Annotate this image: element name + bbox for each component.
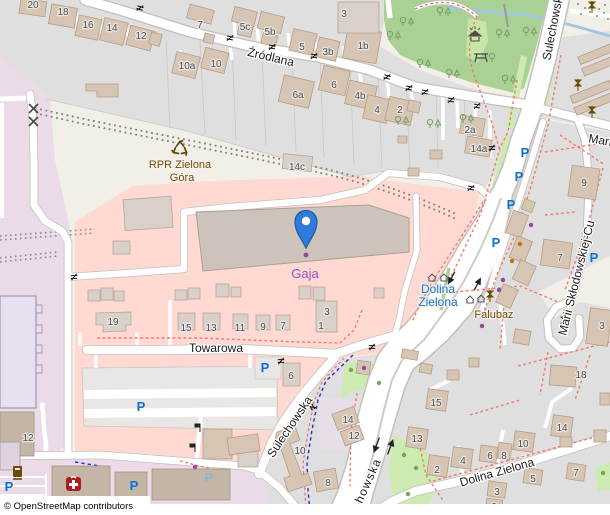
svg-text:10a: 10a	[179, 61, 196, 72]
svg-text:7: 7	[280, 321, 286, 332]
svg-text:4: 4	[460, 456, 466, 467]
svg-text:6: 6	[288, 371, 294, 382]
svg-text:Góra: Góra	[170, 172, 195, 184]
svg-text:7: 7	[197, 20, 203, 31]
svg-text:4: 4	[374, 105, 380, 116]
svg-text:14c: 14c	[289, 162, 305, 173]
svg-text:6a: 6a	[292, 90, 304, 101]
svg-text:12: 12	[22, 433, 34, 444]
svg-text:6: 6	[487, 451, 493, 462]
svg-text:8: 8	[325, 478, 331, 489]
svg-text:P: P	[130, 478, 139, 493]
svg-text:11: 11	[235, 323, 246, 334]
svg-text:3: 3	[324, 307, 330, 318]
svg-text:7: 7	[573, 468, 579, 479]
svg-text:18: 18	[57, 7, 69, 18]
svg-text:3: 3	[494, 487, 500, 498]
svg-text:Dolina: Dolina	[421, 282, 455, 296]
svg-text:8: 8	[501, 451, 507, 462]
svg-text:14a: 14a	[471, 144, 488, 155]
svg-text:20: 20	[27, 0, 39, 11]
svg-text:18: 18	[575, 370, 587, 381]
svg-text:10: 10	[294, 446, 306, 457]
svg-text:14: 14	[106, 23, 118, 34]
svg-text:2a: 2a	[464, 125, 476, 136]
svg-text:5: 5	[530, 474, 536, 485]
svg-text:9: 9	[581, 178, 587, 189]
svg-text:12: 12	[135, 31, 147, 42]
svg-text:5c: 5c	[240, 22, 251, 33]
svg-text:© OpenStreetMap contributors: © OpenStreetMap contributors	[4, 501, 133, 512]
svg-text:14: 14	[342, 415, 354, 426]
svg-text:12: 12	[348, 431, 360, 442]
svg-text:15: 15	[430, 398, 442, 409]
svg-text:P: P	[492, 235, 501, 250]
svg-text:5: 5	[299, 42, 305, 53]
svg-text:P: P	[507, 197, 516, 212]
svg-text:1: 1	[318, 321, 324, 332]
svg-text:10: 10	[517, 439, 529, 450]
svg-text:Falubaz: Falubaz	[474, 309, 513, 321]
svg-text:7: 7	[557, 253, 563, 264]
svg-text:3: 3	[341, 9, 347, 20]
svg-text:RPR Zielona: RPR Zielona	[149, 159, 212, 171]
svg-text:Gaja: Gaja	[291, 266, 319, 281]
svg-text:P: P	[5, 479, 14, 494]
svg-text:Zielona: Zielona	[418, 295, 458, 309]
svg-text:13: 13	[205, 323, 217, 334]
svg-text:6: 6	[331, 80, 337, 91]
svg-text:1b: 1b	[357, 41, 369, 52]
svg-text:P: P	[521, 145, 530, 160]
svg-text:P: P	[515, 169, 524, 184]
svg-text:P: P	[137, 399, 146, 414]
svg-text:4b: 4b	[354, 91, 366, 102]
svg-text:3: 3	[599, 321, 605, 332]
svg-text:3b: 3b	[322, 47, 334, 58]
svg-text:10: 10	[210, 59, 222, 70]
svg-text:19: 19	[107, 317, 119, 328]
svg-text:16: 16	[82, 20, 94, 31]
svg-text:P: P	[590, 250, 599, 265]
svg-text:P: P	[261, 360, 270, 375]
svg-text:5b: 5b	[264, 27, 276, 38]
svg-text:2: 2	[397, 105, 403, 116]
svg-text:9: 9	[260, 322, 266, 333]
svg-text:Towarowa: Towarowa	[189, 341, 243, 355]
svg-text:2: 2	[434, 465, 440, 476]
svg-text:14: 14	[556, 423, 568, 434]
svg-text:P: P	[205, 470, 214, 485]
svg-text:15: 15	[180, 323, 192, 334]
svg-text:13: 13	[411, 434, 423, 445]
